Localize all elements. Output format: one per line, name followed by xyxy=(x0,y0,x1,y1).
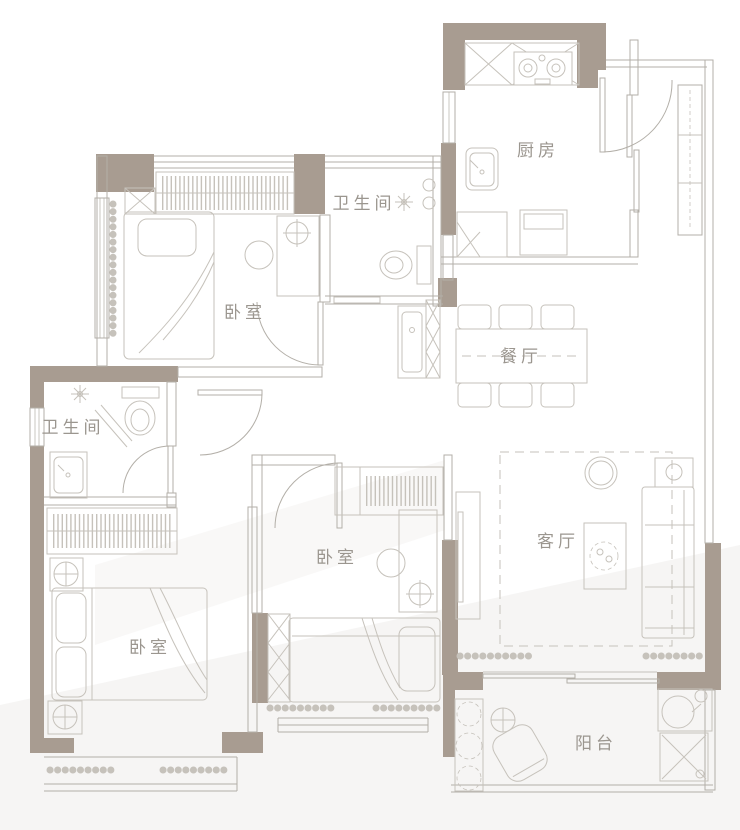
label-dining: 餐厅 xyxy=(500,347,542,367)
hall-door-leaf xyxy=(198,390,262,395)
floor-plan: 卧室 卫生间 厨房 餐厅 卫生间 卧室 卧室 客厅 阳台 xyxy=(0,0,740,830)
label-balcony: 阳台 xyxy=(575,734,617,754)
label-bedroom-left: 卧室 xyxy=(129,638,171,658)
entry-door-leaf xyxy=(600,78,605,152)
tv-console xyxy=(456,492,480,619)
plant xyxy=(585,457,617,489)
label-bathroom-left: 卫生间 xyxy=(42,418,105,438)
pillow xyxy=(56,593,86,643)
sliding-door-panel xyxy=(634,150,639,212)
shower-icon xyxy=(395,193,413,211)
bedroom-top-door-leaf xyxy=(318,302,323,365)
shaft xyxy=(426,300,440,378)
desk xyxy=(277,216,319,296)
fridge xyxy=(457,212,507,257)
pillow xyxy=(138,219,196,256)
round-table xyxy=(491,708,515,732)
bathroom-left-door-arc xyxy=(123,446,170,493)
shower-icon xyxy=(71,385,89,403)
label-bathroom-top: 卫生间 xyxy=(333,194,396,214)
toilet xyxy=(122,387,159,435)
bedroom-top-door-arc xyxy=(257,302,320,365)
pocket-door xyxy=(334,297,380,303)
label-kitchen: 厨房 xyxy=(517,141,559,161)
bedroom-top-furniture xyxy=(124,172,319,359)
stool xyxy=(377,549,405,577)
label-living: 客厅 xyxy=(537,532,579,552)
toilet xyxy=(380,246,431,284)
floor-plan-canvas: 卧室 卫生间 厨房 餐厅 卫生间 卧室 卧室 客厅 阳台 xyxy=(0,0,740,830)
bathroom-sink xyxy=(50,452,87,498)
kitchen-cabinet xyxy=(520,210,567,255)
shoe-cabinet xyxy=(678,85,702,235)
stove xyxy=(514,52,572,85)
kitchen-sink xyxy=(466,148,498,190)
entry xyxy=(600,78,702,235)
label-bedroom-middle: 卧室 xyxy=(316,548,358,568)
side-table xyxy=(655,458,693,487)
vanity-sink xyxy=(398,306,426,378)
hall-door-arc xyxy=(200,393,262,455)
bathroom-left-fixtures xyxy=(50,385,159,498)
stool xyxy=(245,241,273,269)
bathroom-left-door-leaf xyxy=(168,446,173,493)
label-bedroom-top: 卧室 xyxy=(224,303,266,323)
